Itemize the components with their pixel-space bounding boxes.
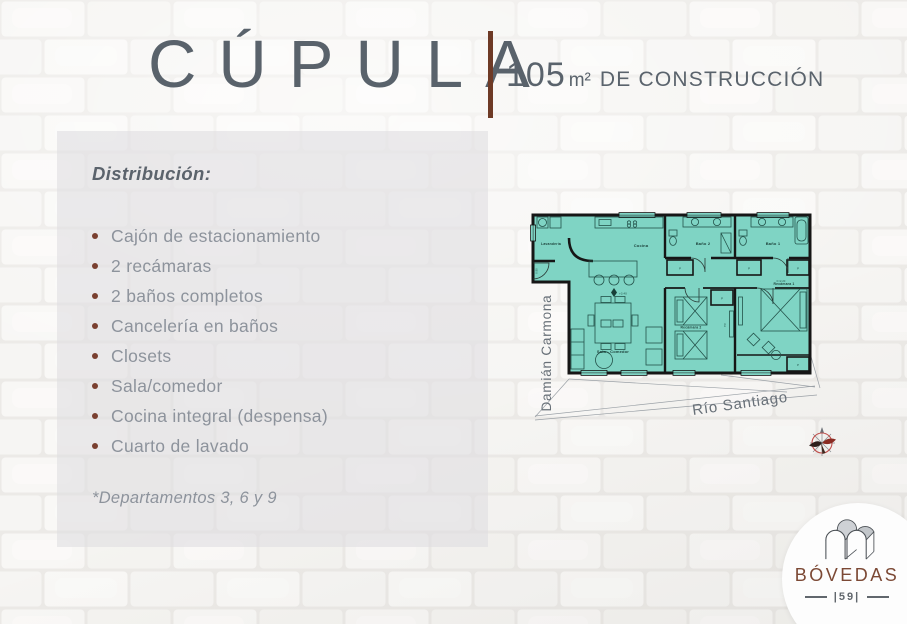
svg-text:Recámara 2: Recámara 2 bbox=[680, 326, 701, 330]
street-label-diagonal: Río Santiago bbox=[691, 389, 789, 419]
bullet-dot bbox=[92, 233, 98, 239]
list-item-label: Closets bbox=[111, 346, 171, 367]
list-item: Cuarto de lavado bbox=[92, 431, 458, 461]
list-item: 2 baños completos bbox=[92, 281, 458, 311]
svg-text:P: P bbox=[721, 297, 723, 301]
list-item: 2 recámaras bbox=[92, 251, 458, 281]
bullet-dot bbox=[92, 413, 98, 419]
list-item: Cancelería en baños bbox=[92, 311, 458, 341]
bullet-dot bbox=[92, 383, 98, 389]
area-value: 105 bbox=[506, 56, 566, 95]
floor-plan: P P P P P bbox=[525, 203, 907, 463]
logo-number: |59| bbox=[834, 591, 860, 603]
bullet-dot bbox=[92, 263, 98, 269]
area-label: DE CONSTRUCCIÓN bbox=[600, 68, 825, 92]
street-label-vertical: Damián Carmona bbox=[539, 295, 554, 412]
bullet-dot bbox=[92, 353, 98, 359]
bullet-dot bbox=[92, 293, 98, 299]
list-item: Closets bbox=[92, 341, 458, 371]
svg-text:Cocina: Cocina bbox=[634, 243, 649, 248]
logo-name: BÓVEDAS bbox=[795, 565, 900, 586]
svg-text:+3.40: +3.40 bbox=[619, 292, 627, 296]
construction-area: 105 m² DE CONSTRUCCIÓN bbox=[506, 56, 824, 95]
bullet-dot bbox=[92, 443, 98, 449]
bullet-dot bbox=[92, 323, 98, 329]
apartments-footnote: *Departamentos 3, 6 y 9 bbox=[92, 489, 458, 508]
slide: CÚPULA 105 m² DE CONSTRUCCIÓN Distribuci… bbox=[0, 0, 907, 624]
bovedas-logo: BÓVEDAS |59| bbox=[782, 503, 907, 624]
logo-content: BÓVEDAS |59| bbox=[788, 515, 906, 603]
list-item-label: Cocina integral (despensa) bbox=[111, 406, 328, 427]
list-item-label: 2 baños completos bbox=[111, 286, 263, 307]
apartment-outline bbox=[533, 215, 810, 373]
list-item-label: 2 recámaras bbox=[111, 256, 212, 277]
svg-text:Baño 1: Baño 1 bbox=[766, 241, 781, 246]
logo-number-row: |59| bbox=[805, 591, 889, 603]
logo-dash-right bbox=[867, 596, 889, 598]
list-item: Cocina integral (despensa) bbox=[92, 401, 458, 431]
logo-dash-left bbox=[805, 596, 827, 598]
svg-text:Baño 2: Baño 2 bbox=[696, 241, 711, 246]
svg-text:P: P bbox=[748, 267, 750, 271]
svg-text:P: P bbox=[797, 267, 799, 271]
list-item-label: Cuarto de lavado bbox=[111, 436, 249, 457]
list-item-label: Cancelería en baños bbox=[111, 316, 278, 337]
svg-text:0.90: 0.90 bbox=[535, 268, 539, 274]
distribution-heading: Distribución: bbox=[92, 163, 458, 185]
svg-text:Lavandería: Lavandería bbox=[541, 242, 561, 246]
list-item: Sala/comedor bbox=[92, 371, 458, 401]
svg-text:P: P bbox=[797, 363, 799, 367]
svg-text:P: P bbox=[679, 267, 681, 271]
list-item: Cajón de estacionamiento bbox=[92, 221, 458, 251]
svg-text:Sala - Comedor: Sala - Comedor bbox=[597, 349, 629, 354]
list-item-label: Cajón de estacionamiento bbox=[111, 226, 321, 247]
vaults-logo-icon bbox=[818, 515, 876, 563]
compass-rose-icon bbox=[809, 427, 836, 456]
list-item-label: Sala/comedor bbox=[111, 376, 223, 397]
svg-text:h=2.20: h=2.20 bbox=[777, 279, 786, 283]
area-unit: m² bbox=[569, 70, 591, 92]
title-divider-bar bbox=[488, 31, 493, 118]
feature-list: Cajón de estacionamiento 2 recámaras 2 b… bbox=[92, 221, 458, 461]
distribution-panel: Distribución: Cajón de estacionamiento 2… bbox=[57, 131, 488, 547]
